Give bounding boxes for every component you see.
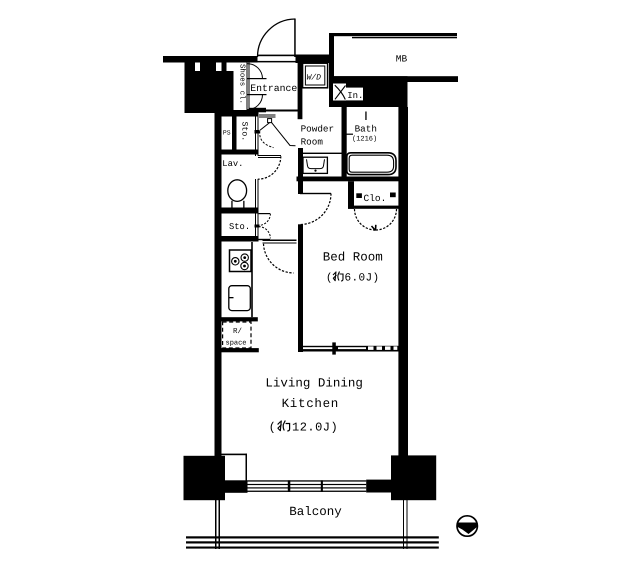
svg-text:(: ( [269,421,276,435]
svg-text:Balcony: Balcony [289,505,342,519]
svg-text:Kitchen: Kitchen [282,397,339,411]
svg-text:PS: PS [223,130,231,137]
svg-text:In.: In. [347,91,363,101]
svg-text:R/: R/ [233,327,243,336]
svg-text:6.0J): 6.0J) [345,273,380,285]
svg-text:Powder: Powder [301,123,334,134]
svg-text:Sto.: Sto. [240,122,249,142]
svg-text:Entrance: Entrance [250,83,297,94]
svg-text:Shoes cl.: Shoes cl. [238,64,247,104]
svg-text:12.0J): 12.0J) [292,421,338,435]
svg-text:Bed Room: Bed Room [323,251,383,265]
svg-text:Living Dining: Living Dining [265,376,363,390]
svg-text:Room: Room [301,136,324,147]
svg-text:W/D: W/D [307,74,322,83]
svg-text:(: ( [326,273,333,285]
svg-text:(1216): (1216) [352,135,377,144]
svg-text:Bath: Bath [355,124,377,135]
svg-text:Clo.: Clo. [364,193,387,204]
svg-text:Sto.: Sto. [229,222,250,232]
svg-text:space: space [226,340,247,348]
svg-text:MB: MB [396,53,408,64]
svg-text:Lav.: Lav. [222,159,243,169]
